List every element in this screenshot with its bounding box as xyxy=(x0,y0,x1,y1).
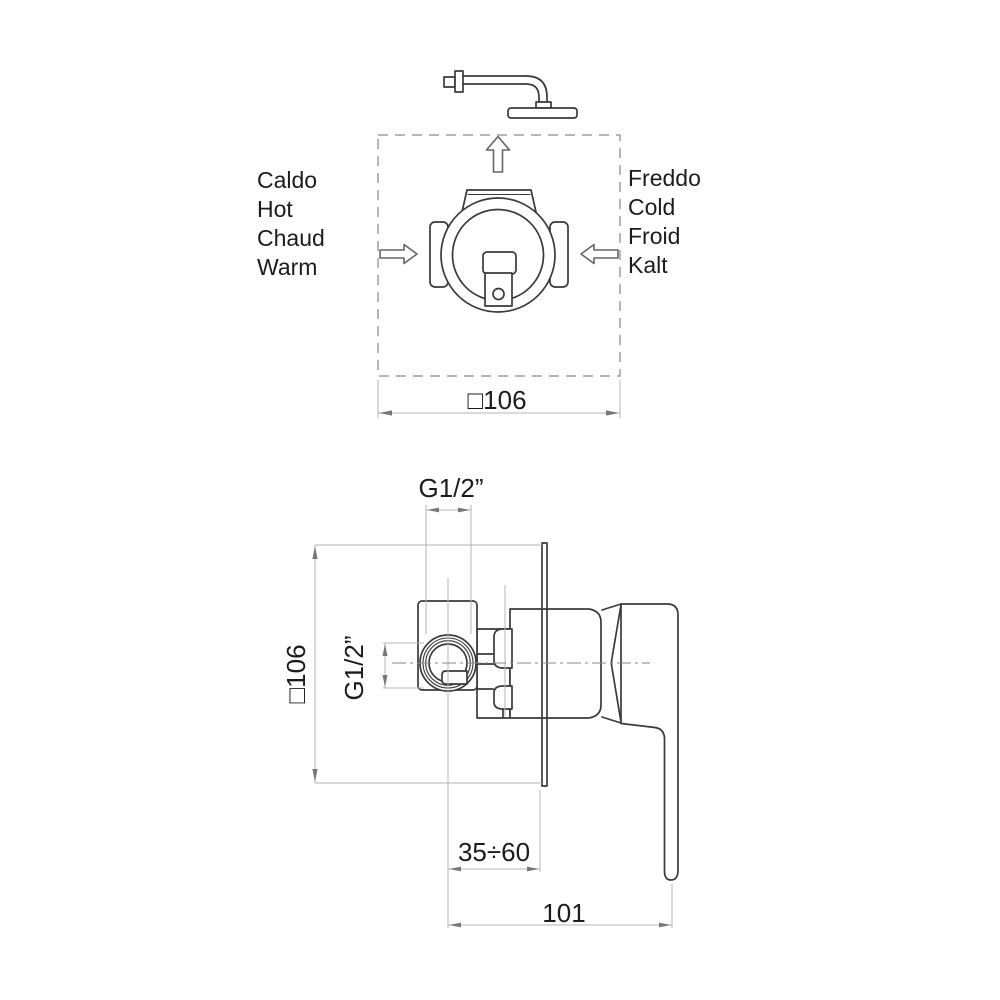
shower-arm-nut xyxy=(444,77,455,87)
technical-drawing: Caldo Hot Chaud Warm Freddo Cold Froid K… xyxy=(0,0,1000,1000)
flow-arrow-cold-icon xyxy=(581,245,618,264)
cold-label-en: Cold xyxy=(628,194,675,220)
technical-drawing-page: Caldo Hot Chaud Warm Freddo Cold Froid K… xyxy=(0,0,1000,1000)
hot-label-de: Warm xyxy=(257,254,317,280)
flow-arrow-up-icon xyxy=(487,137,510,173)
shower-head xyxy=(508,108,577,118)
shower-arm-flange xyxy=(455,71,463,92)
hot-label-it: Caldo xyxy=(257,167,317,193)
hot-label-en: Hot xyxy=(257,196,293,222)
mixer-side-view xyxy=(418,543,678,880)
shower-arm-pipe xyxy=(463,76,547,102)
cold-label-fr: Froid xyxy=(628,223,680,249)
cold-label-it: Freddo xyxy=(628,165,701,191)
retaining-tab-upper xyxy=(494,629,512,668)
dim-thread-side: G1/2” xyxy=(339,635,369,700)
dim-thread-top: G1/2” xyxy=(418,473,483,503)
valve-front-view xyxy=(430,190,568,312)
shower-head-connector xyxy=(536,102,551,108)
flow-arrow-hot-icon xyxy=(380,245,417,264)
dim-depth-range: 35÷60 xyxy=(458,837,530,867)
cartridge-top xyxy=(483,252,516,274)
hot-labels: Caldo Hot Chaud Warm xyxy=(257,167,325,280)
dim-width-106: □106 xyxy=(467,385,526,415)
cartridge-screw xyxy=(493,289,504,300)
inlet-detail xyxy=(442,671,467,684)
width-dimension: □106 xyxy=(378,380,620,418)
shower-arm-icon xyxy=(444,71,577,118)
lever-handle xyxy=(621,604,678,880)
cold-labels: Freddo Cold Froid Kalt xyxy=(628,165,701,278)
cold-label-de: Kalt xyxy=(628,252,668,278)
dim-length-101: 101 xyxy=(542,898,585,928)
dim-square-106: □106 xyxy=(281,644,311,703)
hot-label-fr: Chaud xyxy=(257,225,325,251)
retaining-tab-lower xyxy=(494,686,512,709)
